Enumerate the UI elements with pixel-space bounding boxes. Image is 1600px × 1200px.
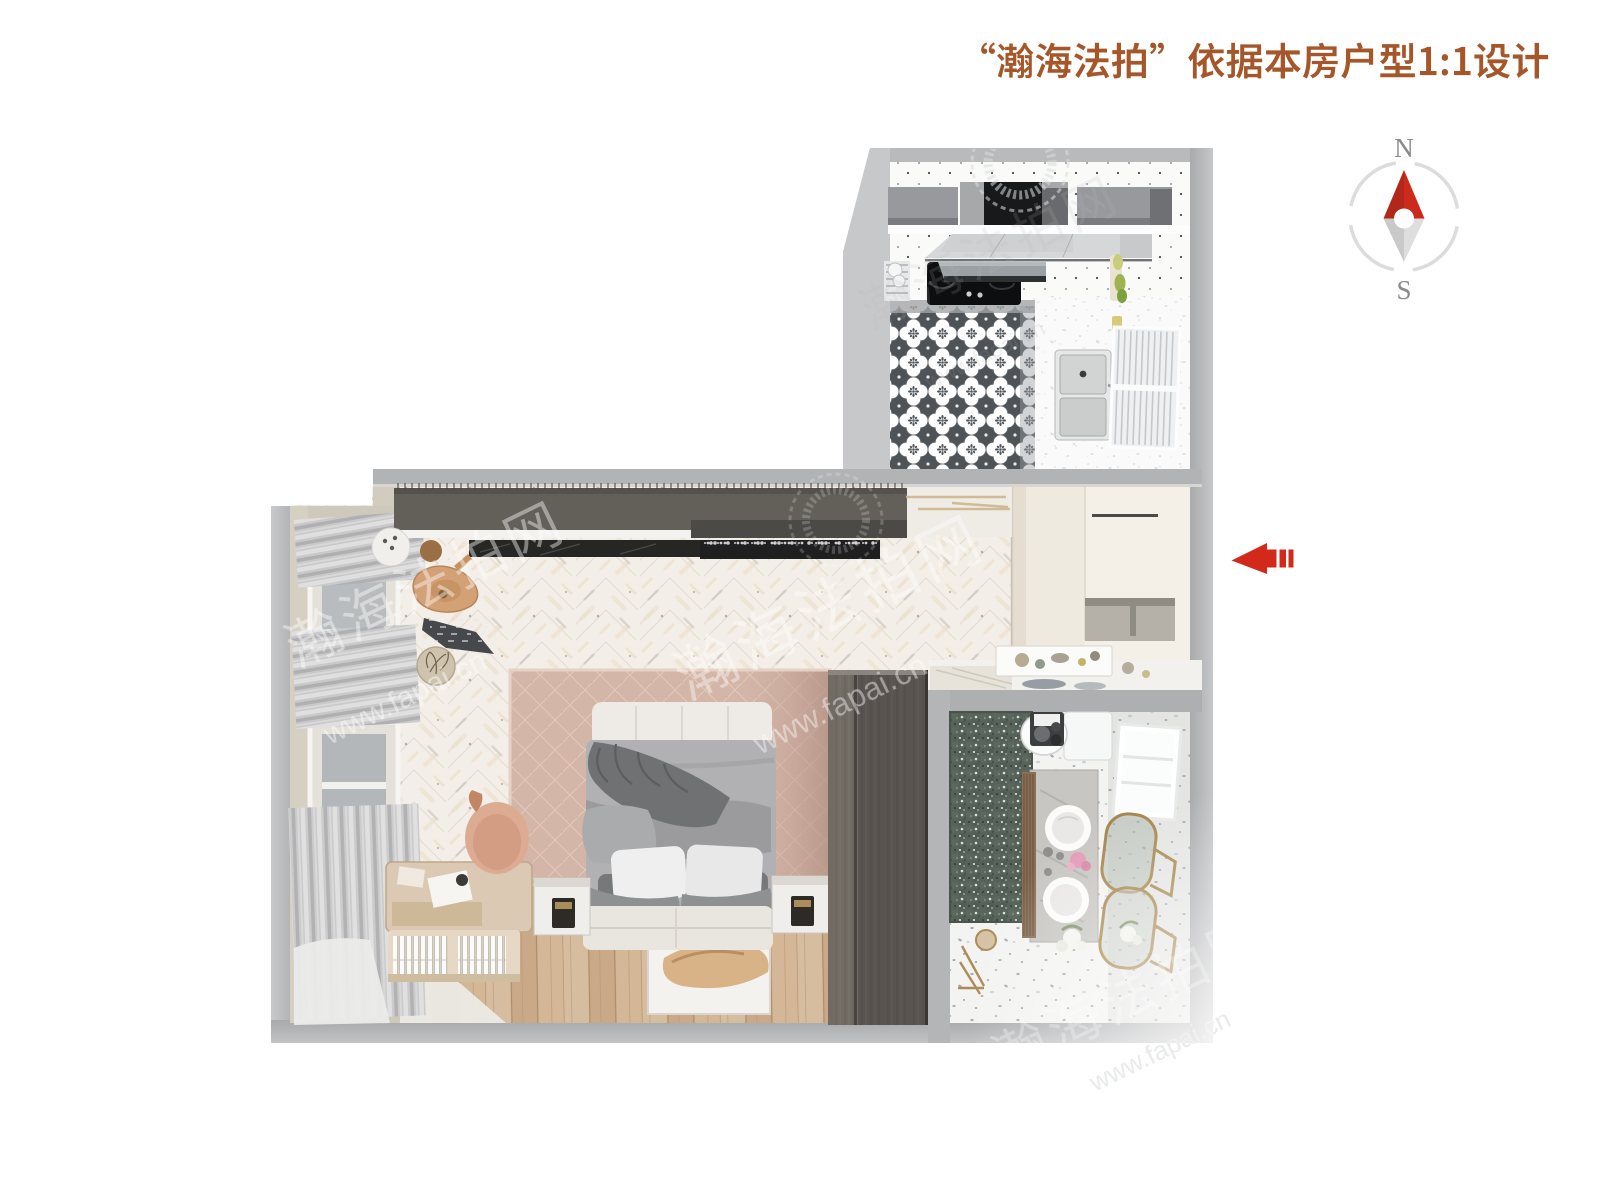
svg-text:S: S (1396, 275, 1411, 305)
svg-text:N: N (1394, 133, 1414, 163)
